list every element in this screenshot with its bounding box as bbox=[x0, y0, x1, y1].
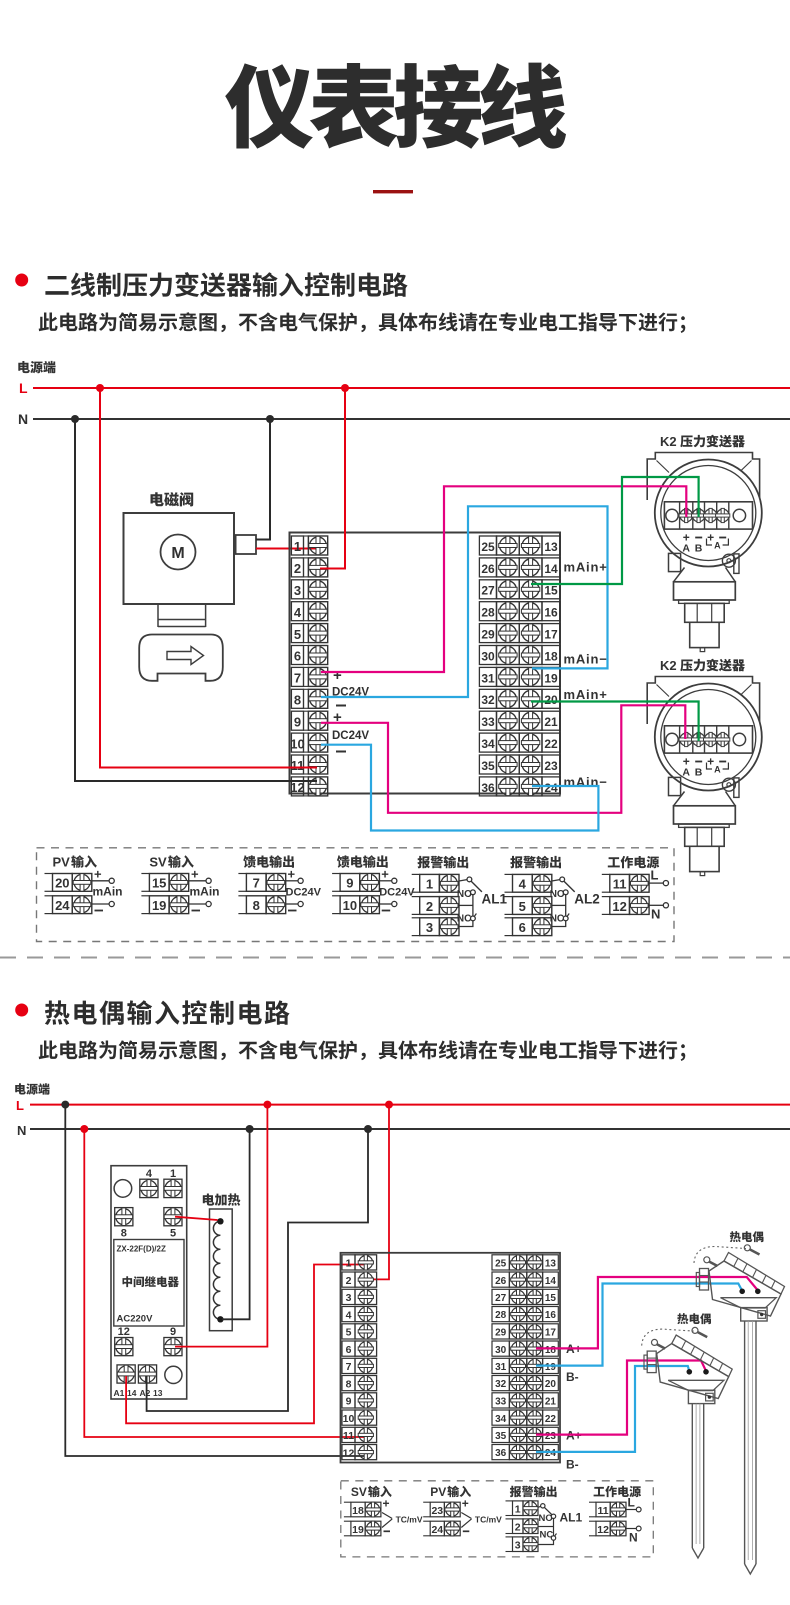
svg-text:+: + bbox=[707, 531, 714, 545]
svg-text:21: 21 bbox=[544, 715, 558, 729]
svg-text:1: 1 bbox=[515, 1504, 521, 1516]
svg-text:4: 4 bbox=[294, 605, 302, 620]
svg-text:AL1: AL1 bbox=[560, 1511, 583, 1525]
svg-text:13: 13 bbox=[153, 1388, 163, 1398]
svg-text:25: 25 bbox=[495, 1259, 507, 1270]
svg-text:15: 15 bbox=[152, 876, 166, 891]
svg-text:mAin+: mAin+ bbox=[564, 560, 608, 575]
svg-text:8: 8 bbox=[294, 693, 301, 708]
svg-text:10: 10 bbox=[343, 1413, 355, 1425]
svg-text:18: 18 bbox=[544, 649, 558, 663]
svg-text:+: + bbox=[462, 1497, 469, 1511]
svg-text:mAin: mAin bbox=[190, 885, 220, 899]
svg-text:2: 2 bbox=[346, 1275, 352, 1287]
svg-text:30: 30 bbox=[495, 1345, 507, 1356]
svg-text:5: 5 bbox=[170, 1228, 176, 1240]
svg-text:DC24V: DC24V bbox=[379, 887, 415, 899]
svg-text:11: 11 bbox=[291, 758, 305, 773]
svg-text:24: 24 bbox=[55, 898, 70, 913]
svg-text:26: 26 bbox=[481, 562, 495, 576]
svg-text:23: 23 bbox=[431, 1505, 443, 1517]
svg-text:36: 36 bbox=[481, 781, 495, 795]
svg-text:B-: B- bbox=[566, 1370, 579, 1384]
svg-text:23: 23 bbox=[545, 1431, 557, 1442]
svg-text:+: + bbox=[191, 867, 199, 882]
svg-text:SV: SV bbox=[149, 855, 167, 870]
svg-text:27: 27 bbox=[481, 584, 495, 598]
svg-text:NC: NC bbox=[457, 914, 471, 925]
svg-text:mAin−: mAin− bbox=[564, 775, 608, 790]
svg-text:16: 16 bbox=[545, 1310, 557, 1321]
svg-text:24: 24 bbox=[431, 1524, 443, 1536]
svg-text:13: 13 bbox=[545, 1259, 557, 1270]
svg-text:26: 26 bbox=[495, 1276, 507, 1287]
svg-text:5: 5 bbox=[519, 899, 526, 914]
svg-text:L: L bbox=[651, 868, 659, 883]
svg-text:31: 31 bbox=[495, 1362, 507, 1373]
svg-text:DC24V: DC24V bbox=[332, 730, 369, 742]
svg-text:B: B bbox=[695, 543, 703, 555]
svg-text:N: N bbox=[629, 1531, 638, 1545]
svg-text:N: N bbox=[17, 1123, 26, 1138]
svg-text:11: 11 bbox=[343, 1430, 354, 1442]
svg-text:4: 4 bbox=[146, 1168, 153, 1180]
svg-text:NO: NO bbox=[550, 889, 565, 900]
svg-text:20: 20 bbox=[545, 1379, 557, 1390]
svg-text:12: 12 bbox=[612, 899, 626, 914]
svg-text:ZX-22F(D)/2Z: ZX-22F(D)/2Z bbox=[117, 1245, 166, 1254]
svg-text:12: 12 bbox=[118, 1326, 130, 1338]
svg-text:12: 12 bbox=[343, 1448, 355, 1460]
svg-text:36: 36 bbox=[495, 1448, 507, 1459]
svg-text:mAin: mAin bbox=[93, 885, 123, 899]
svg-text:7: 7 bbox=[253, 876, 260, 891]
svg-text:L: L bbox=[19, 380, 28, 396]
svg-text:15: 15 bbox=[545, 1293, 557, 1304]
svg-text:AC220V: AC220V bbox=[117, 1314, 154, 1325]
svg-text:+: + bbox=[383, 1497, 390, 1511]
svg-text:19: 19 bbox=[545, 1362, 557, 1373]
svg-text:34: 34 bbox=[481, 737, 495, 751]
svg-text:32: 32 bbox=[481, 693, 495, 707]
svg-text:27: 27 bbox=[495, 1293, 507, 1304]
svg-text:9: 9 bbox=[346, 1396, 352, 1408]
svg-text:9: 9 bbox=[294, 714, 301, 729]
svg-text:30: 30 bbox=[481, 649, 495, 663]
svg-text:5: 5 bbox=[294, 627, 301, 642]
svg-text:17: 17 bbox=[545, 1328, 557, 1339]
svg-text:24: 24 bbox=[544, 781, 558, 795]
svg-text:18: 18 bbox=[352, 1505, 364, 1517]
svg-text:19: 19 bbox=[544, 671, 558, 685]
svg-text:2: 2 bbox=[426, 899, 433, 914]
svg-text:19: 19 bbox=[352, 1524, 364, 1536]
svg-text:14: 14 bbox=[127, 1388, 137, 1398]
svg-text:4: 4 bbox=[519, 877, 527, 892]
svg-text:2: 2 bbox=[515, 1522, 521, 1534]
svg-text:+: + bbox=[333, 667, 342, 684]
svg-text:33: 33 bbox=[481, 715, 495, 729]
svg-text:SV: SV bbox=[351, 1485, 367, 1499]
svg-text:11: 11 bbox=[613, 877, 627, 892]
svg-text:NC: NC bbox=[550, 914, 564, 925]
svg-text:+: + bbox=[381, 867, 389, 882]
svg-text:29: 29 bbox=[481, 628, 495, 642]
svg-text:16: 16 bbox=[544, 606, 558, 620]
svg-text:+: + bbox=[94, 867, 102, 882]
svg-text:AL2: AL2 bbox=[574, 892, 600, 907]
svg-text:25: 25 bbox=[481, 540, 495, 554]
svg-text:8: 8 bbox=[346, 1379, 352, 1391]
svg-text:3: 3 bbox=[346, 1292, 352, 1304]
svg-text:DC24V: DC24V bbox=[286, 887, 322, 899]
svg-text:9: 9 bbox=[346, 876, 353, 891]
svg-text:1: 1 bbox=[346, 1258, 352, 1270]
svg-text:14: 14 bbox=[544, 562, 558, 576]
svg-text:AL1: AL1 bbox=[482, 892, 508, 907]
svg-text:10: 10 bbox=[290, 736, 304, 751]
svg-text:17: 17 bbox=[544, 628, 558, 642]
svg-text:13: 13 bbox=[544, 540, 558, 554]
svg-text:6: 6 bbox=[519, 920, 526, 935]
svg-text:22: 22 bbox=[545, 1414, 557, 1425]
svg-text:19: 19 bbox=[152, 898, 166, 913]
svg-text:3: 3 bbox=[515, 1540, 521, 1552]
svg-text:4: 4 bbox=[346, 1310, 352, 1322]
svg-text:6: 6 bbox=[294, 649, 301, 664]
svg-text:N: N bbox=[18, 411, 28, 427]
svg-text:7: 7 bbox=[294, 671, 301, 686]
svg-text:28: 28 bbox=[481, 606, 495, 620]
svg-text:6: 6 bbox=[346, 1344, 352, 1356]
svg-text:35: 35 bbox=[481, 759, 495, 773]
svg-text:mAin−: mAin− bbox=[564, 652, 608, 667]
svg-text:18: 18 bbox=[545, 1345, 557, 1356]
svg-text:8: 8 bbox=[121, 1228, 127, 1240]
svg-text:28: 28 bbox=[495, 1310, 507, 1321]
svg-text:A1: A1 bbox=[114, 1388, 125, 1398]
svg-text:2: 2 bbox=[294, 561, 301, 576]
svg-text:1: 1 bbox=[170, 1168, 176, 1180]
svg-text:3: 3 bbox=[426, 920, 433, 935]
svg-text:7: 7 bbox=[346, 1361, 352, 1373]
svg-text:1: 1 bbox=[294, 539, 301, 554]
svg-text:5: 5 bbox=[346, 1327, 352, 1339]
svg-text:TC/mV: TC/mV bbox=[475, 1515, 502, 1525]
svg-text:1: 1 bbox=[426, 877, 433, 892]
svg-text:20: 20 bbox=[544, 693, 558, 707]
svg-text:A2: A2 bbox=[140, 1388, 151, 1398]
svg-text:NO: NO bbox=[539, 1513, 553, 1524]
svg-text:A: A bbox=[682, 543, 690, 555]
svg-text:21: 21 bbox=[545, 1397, 557, 1408]
svg-text:29: 29 bbox=[495, 1328, 507, 1339]
svg-text:14: 14 bbox=[545, 1276, 557, 1287]
svg-text:23: 23 bbox=[544, 759, 558, 773]
svg-text:mAin+: mAin+ bbox=[564, 687, 608, 702]
svg-text:L: L bbox=[628, 1496, 635, 1510]
svg-text:TC/mV: TC/mV bbox=[396, 1515, 423, 1525]
svg-text:L: L bbox=[16, 1098, 24, 1113]
svg-text:24: 24 bbox=[545, 1448, 557, 1459]
svg-text:N: N bbox=[651, 907, 660, 922]
svg-text:B-: B- bbox=[566, 1458, 579, 1472]
svg-text:+: + bbox=[288, 867, 296, 882]
svg-text:12: 12 bbox=[290, 780, 304, 795]
svg-text:32: 32 bbox=[495, 1379, 507, 1390]
svg-text:A: A bbox=[714, 541, 721, 551]
svg-text:35: 35 bbox=[495, 1431, 507, 1442]
svg-text:PV: PV bbox=[430, 1485, 446, 1499]
svg-text:11: 11 bbox=[598, 1505, 609, 1517]
svg-text:9: 9 bbox=[170, 1326, 176, 1338]
svg-text:20: 20 bbox=[55, 876, 69, 891]
svg-text:31: 31 bbox=[481, 671, 495, 685]
svg-text:8: 8 bbox=[253, 898, 260, 913]
svg-text:10: 10 bbox=[343, 898, 357, 913]
svg-text:15: 15 bbox=[544, 584, 558, 598]
svg-text:34: 34 bbox=[495, 1414, 507, 1425]
svg-text:PV: PV bbox=[53, 855, 71, 870]
svg-text:M: M bbox=[171, 545, 184, 562]
svg-text:12: 12 bbox=[597, 1524, 609, 1536]
svg-text:22: 22 bbox=[544, 737, 558, 751]
svg-text:33: 33 bbox=[495, 1397, 507, 1408]
svg-text:NO: NO bbox=[457, 889, 472, 900]
svg-text:K2: K2 bbox=[660, 434, 677, 449]
svg-text:3: 3 bbox=[294, 583, 301, 598]
